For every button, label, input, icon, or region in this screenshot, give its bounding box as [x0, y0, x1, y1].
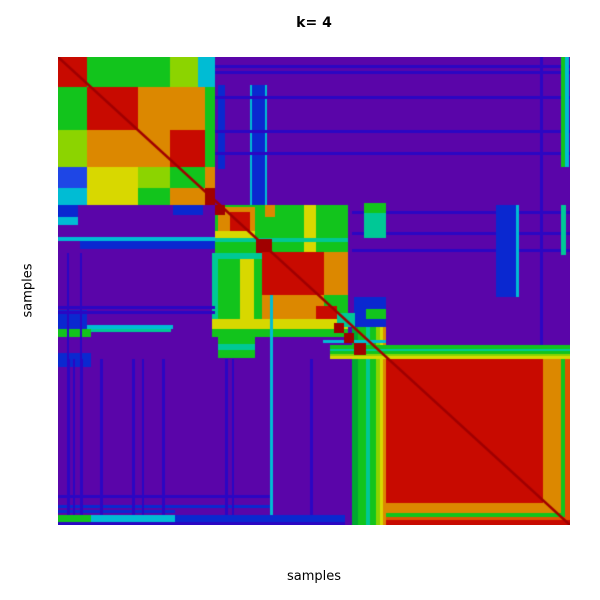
plot-title: k= 4	[58, 15, 570, 31]
consensus-matrix-heatmap	[58, 57, 570, 525]
y-axis-label: samples	[21, 226, 36, 356]
x-axis-label: samples	[58, 569, 570, 584]
consensus-plot-figure: k= 4 samples samples	[0, 0, 600, 600]
